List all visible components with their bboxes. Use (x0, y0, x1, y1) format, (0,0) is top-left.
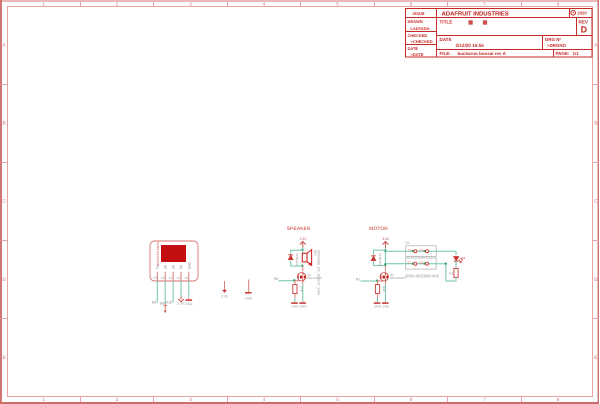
svg-text:4: 4 (263, 397, 266, 402)
svg-text:DATE: DATE (440, 37, 452, 42)
svg-text:>DRGNO: >DRGNO (547, 43, 566, 48)
svg-text:GND: GND (185, 302, 193, 306)
svg-text:D: D (3, 277, 7, 282)
svg-text:2060-402/998-406: 2060-402/998-406 (405, 273, 440, 278)
svg-text:13: 13 (161, 276, 165, 280)
svg-text:GND: GND (382, 305, 390, 309)
svg-text:2020: 2020 (577, 11, 587, 16)
svg-text:C: C (3, 199, 7, 204)
svg-text:CHECKED: CHECKED (408, 33, 428, 38)
svg-text:SPEAKER: SPEAKER (287, 226, 311, 232)
svg-text:6: 6 (410, 397, 413, 402)
svg-text:R3: R3 (449, 271, 453, 275)
svg-text:E: E (594, 355, 597, 360)
svg-text:1.1: 1.1 (407, 248, 412, 252)
svg-text:>CHECKED: >CHECKED (411, 39, 433, 44)
svg-text:DRAWN: DRAWN (408, 19, 423, 24)
svg-text:DMG3404W: DMG3404W (307, 277, 322, 280)
svg-text:D: D (581, 25, 588, 35)
svg-text:1/1: 1/1 (573, 51, 580, 56)
svg-text:2: 2 (116, 1, 119, 6)
svg-text:D8: D8 (164, 265, 168, 269)
svg-text:3.3V: 3.3V (178, 301, 186, 305)
svg-text:P2: P2 (356, 277, 360, 281)
svg-text:4: 4 (263, 1, 266, 6)
svg-text:GND: GND (300, 305, 308, 309)
svg-text:MOTOR: MOTOR (369, 226, 388, 232)
svg-text:2.2: 2.2 (419, 260, 424, 264)
svg-text:3: 3 (189, 397, 192, 402)
svg-text:DMG3404W: DMG3404W (390, 277, 405, 280)
svg-text:3: 3 (189, 1, 192, 6)
svg-text:DATE: DATE (408, 46, 419, 51)
svg-text:SOD123: SOD123 (295, 253, 299, 265)
svg-text:7: 7 (483, 1, 486, 6)
svg-text:FILE:: FILE: (440, 51, 452, 56)
svg-text:D10: D10 (166, 301, 173, 305)
svg-text:1: 1 (42, 397, 45, 402)
svg-text:TITLE: TITLE (440, 19, 453, 24)
svg-text:3.3V: 3.3V (300, 237, 308, 241)
svg-text:GND: GND (374, 305, 382, 309)
svg-text:D2: D2 (179, 265, 183, 269)
svg-text:GND: GND (187, 262, 191, 270)
svg-text:buckaroo bonsai rev A: buckaroo bonsai rev A (458, 51, 507, 56)
svg-text:DRG Nº: DRG Nº (545, 37, 561, 42)
svg-text:B: B (3, 121, 6, 126)
svg-text:5: 5 (336, 397, 339, 402)
svg-text:15: 15 (153, 276, 157, 280)
svg-text:2: 2 (116, 397, 119, 402)
svg-text:8: 8 (557, 1, 560, 6)
svg-text:ADAFRUIT INDUSTRIES: ADAFRUIT INDUSTRIES (442, 11, 509, 18)
svg-text:11: 11 (177, 276, 181, 280)
svg-text:D8: D8 (152, 301, 157, 305)
svg-text:PA: PA (274, 277, 279, 281)
svg-text:E: E (3, 355, 6, 360)
svg-text:PAGE:: PAGE: (556, 51, 570, 56)
svg-text:3.3V: 3.3V (221, 295, 229, 299)
svg-text:GND: GND (245, 296, 253, 300)
svg-text:D3: D3 (462, 256, 466, 260)
svg-text:5: 5 (336, 1, 339, 6)
svg-text:MONSTER M4SK: MONSTER M4SK (156, 241, 160, 267)
svg-text:GND: GND (291, 305, 299, 309)
svg-text:7: 7 (483, 397, 486, 402)
svg-text:3.3V: 3.3V (382, 237, 390, 241)
svg-text:10: 10 (185, 276, 189, 280)
svg-text:1.2: 1.2 (419, 248, 424, 252)
svg-text:SOD123: SOD123 (378, 253, 382, 265)
svg-text:D9: D9 (171, 265, 175, 269)
svg-text:SPEAKER_PC_MOUNT_5MM: SPEAKER_PC_MOUNT_5MM (317, 250, 321, 295)
svg-text:2/12/20 16:55: 2/12/20 16:55 (456, 43, 485, 48)
svg-text:12: 12 (169, 276, 173, 280)
svg-text:ISSUE: ISSUE (412, 11, 424, 16)
svg-text:2.1: 2.1 (407, 260, 412, 264)
svg-text:X1: X1 (405, 241, 410, 245)
svg-text:8: 8 (557, 397, 560, 402)
svg-text:1: 1 (42, 1, 45, 6)
svg-text:6: 6 (410, 1, 413, 6)
svg-text:SP1: SP1 (313, 250, 317, 256)
svg-text:LADYADA: LADYADA (411, 26, 430, 31)
svg-text:B: B (594, 121, 597, 126)
svg-text:>DATE: >DATE (411, 52, 424, 57)
